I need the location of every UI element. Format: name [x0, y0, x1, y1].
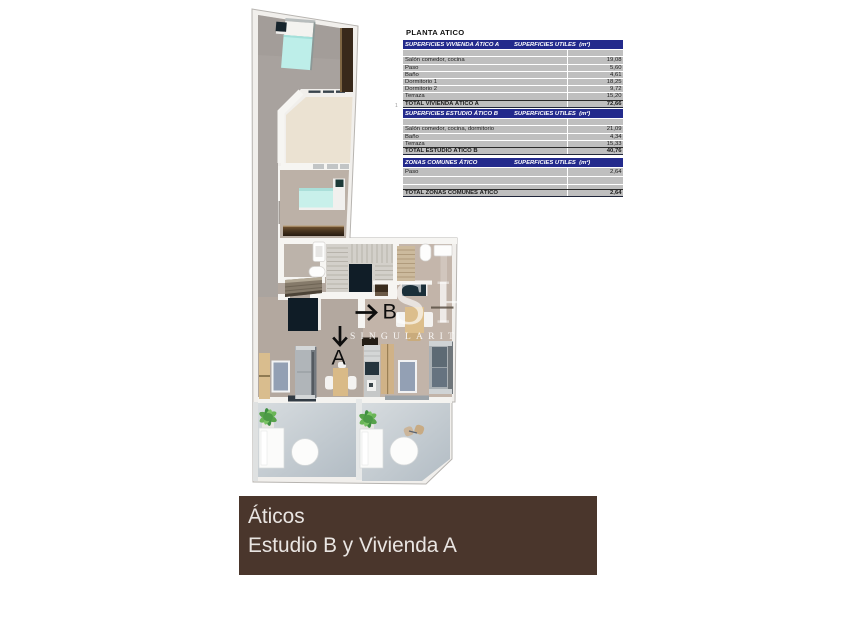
svg-text:SINGULARITY: SINGULARITY: [350, 332, 471, 342]
svg-text:A: A: [332, 346, 347, 370]
svg-text:B: B: [383, 300, 397, 324]
svg-text:S: S: [393, 270, 427, 338]
